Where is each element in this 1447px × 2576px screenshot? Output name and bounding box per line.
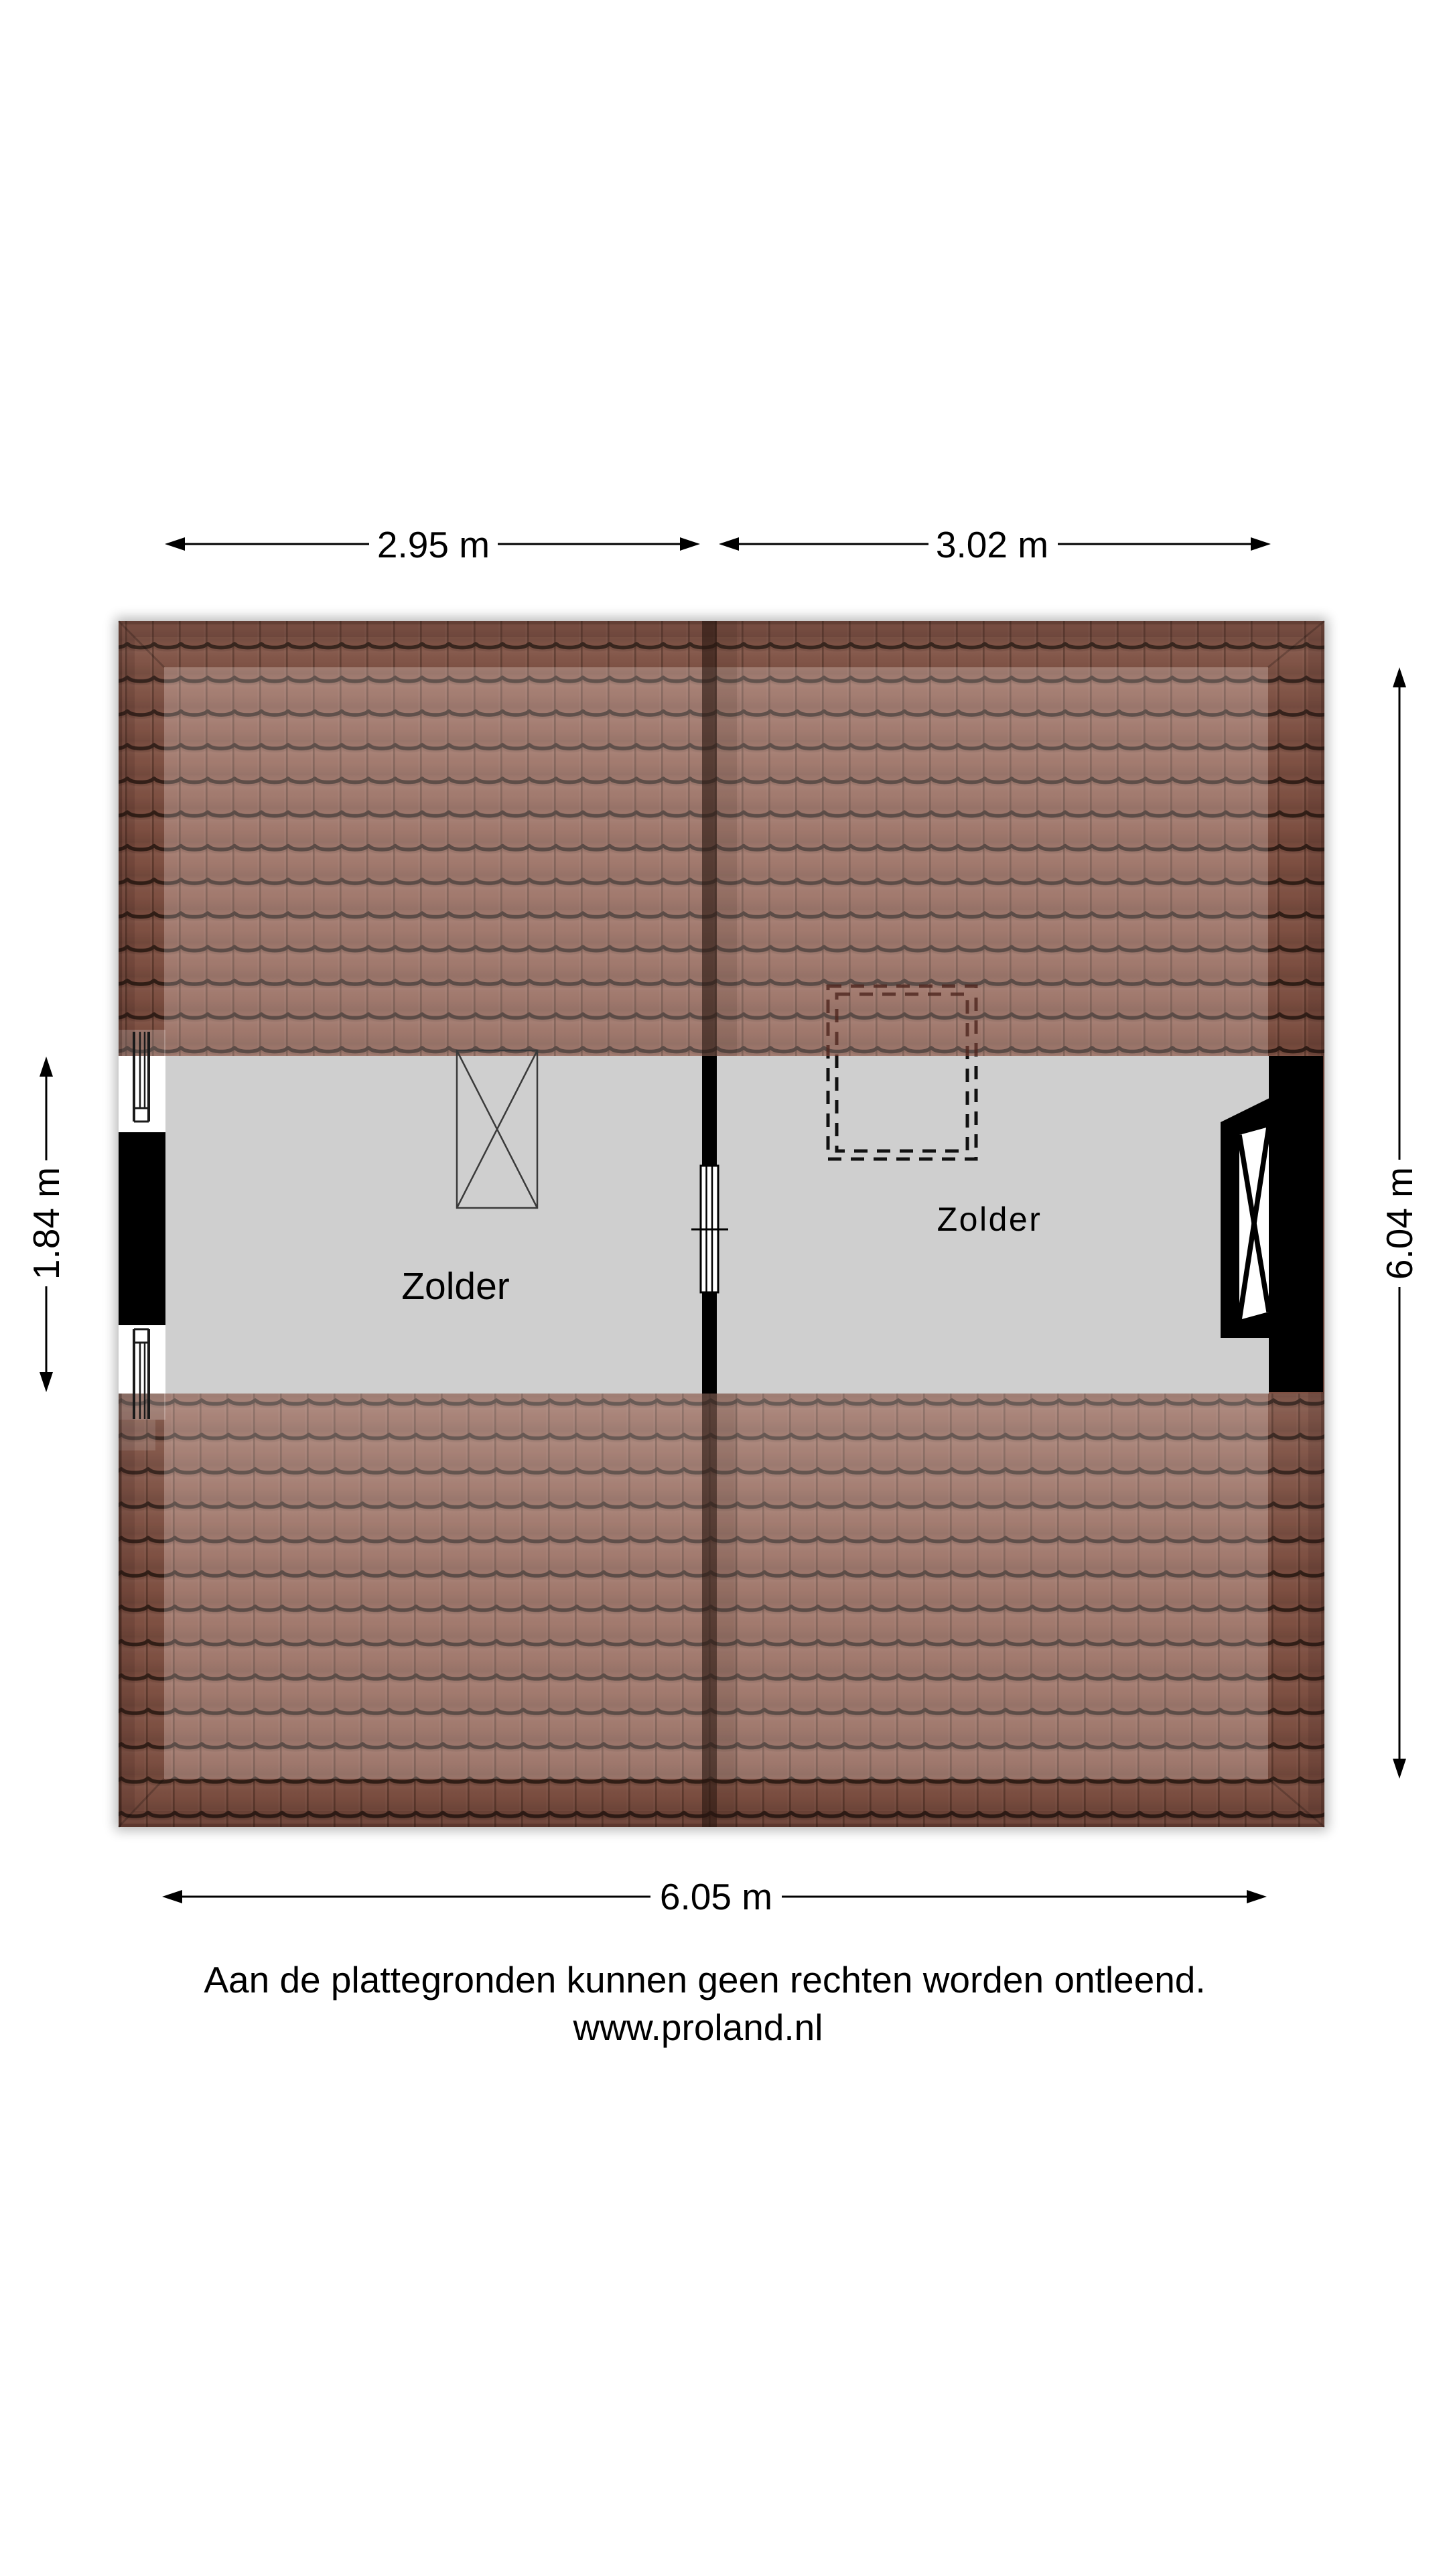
- svg-text:3.02 m: 3.02 m: [936, 524, 1048, 565]
- svg-text:2.95 m: 2.95 m: [377, 524, 490, 565]
- svg-text:1.84 m: 1.84 m: [25, 1167, 67, 1280]
- svg-text:Zolder: Zolder: [937, 1201, 1042, 1238]
- svg-text:6.04 m: 6.04 m: [1379, 1167, 1420, 1280]
- svg-text:www.proland.nl: www.proland.nl: [573, 2007, 823, 2048]
- svg-text:6.05 m: 6.05 m: [660, 1876, 772, 1917]
- svg-text:Zolder: Zolder: [401, 1265, 510, 1308]
- svg-text:Aan de plattegronden kunnen ge: Aan de plattegronden kunnen geen rechten…: [204, 1959, 1205, 2001]
